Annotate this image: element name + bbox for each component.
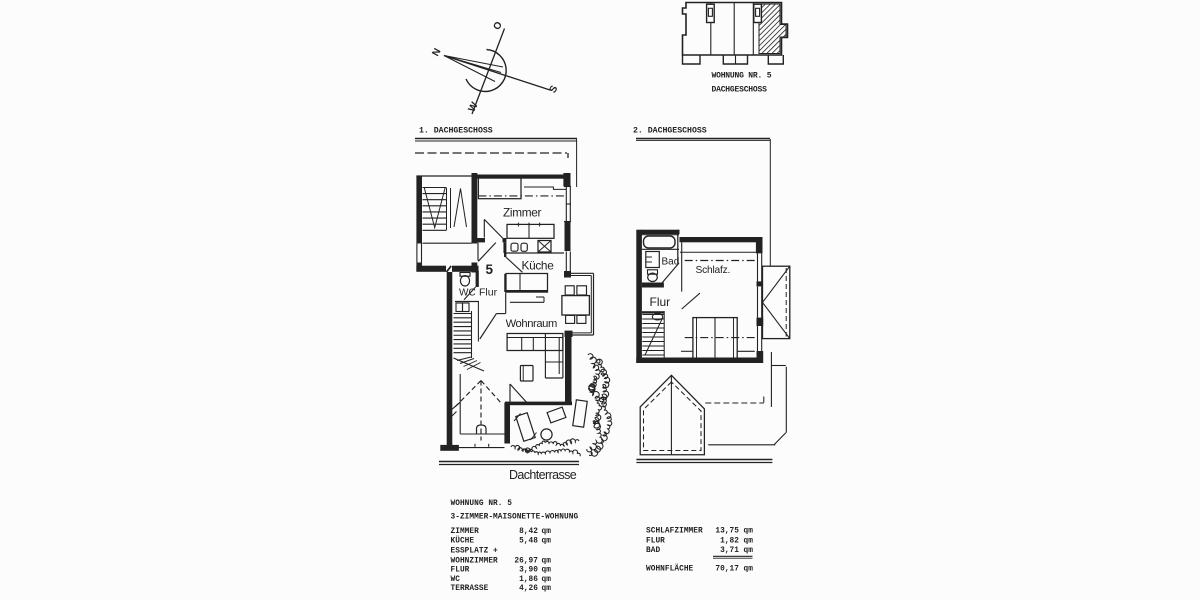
svg-text:qm: qm xyxy=(744,538,754,546)
svg-text:13,75: 13,75 xyxy=(715,528,739,536)
svg-text:qm: qm xyxy=(542,558,552,566)
svg-text:S: S xyxy=(548,84,561,95)
svg-text:5: 5 xyxy=(486,262,494,277)
svg-text:1,82: 1,82 xyxy=(720,538,739,546)
svg-text:2. DACHGESCHOSS: 2. DACHGESCHOSS xyxy=(633,127,707,136)
svg-text:ESSPLATZ +: ESSPLATZ + xyxy=(451,548,499,556)
svg-text:WC: WC xyxy=(451,576,461,584)
svg-text:qm: qm xyxy=(542,567,552,575)
svg-text:O: O xyxy=(492,20,505,32)
svg-text:KÜCHE: KÜCHE xyxy=(451,537,475,546)
svg-text:qm: qm xyxy=(542,538,552,546)
svg-text:5,48: 5,48 xyxy=(519,538,538,546)
svg-text:N: N xyxy=(430,47,443,59)
svg-text:WC: WC xyxy=(459,288,476,299)
svg-text:3,71: 3,71 xyxy=(720,547,739,555)
svg-text:3-ZIMMER-MAISONETTE-WOHNUNG: 3-ZIMMER-MAISONETTE-WOHNUNG xyxy=(451,514,579,522)
svg-text:BAD: BAD xyxy=(646,547,660,555)
svg-text:FLUR: FLUR xyxy=(646,538,665,546)
svg-text:Küche: Küche xyxy=(522,259,555,273)
svg-text:Dachterrasse: Dachterrasse xyxy=(509,468,577,482)
svg-text:1,86: 1,86 xyxy=(519,576,538,584)
svg-text:8,42: 8,42 xyxy=(519,528,538,536)
svg-text:Flur: Flur xyxy=(479,287,498,299)
svg-text:qm: qm xyxy=(744,566,754,574)
svg-text:WOHNFLÄCHE: WOHNFLÄCHE xyxy=(646,565,694,574)
svg-text:1. DACHGESCHOSS: 1. DACHGESCHOSS xyxy=(419,127,493,136)
svg-text:TERRASSE: TERRASSE xyxy=(451,585,489,593)
svg-text:WOHNUNG NR. 5: WOHNUNG NR. 5 xyxy=(451,500,513,508)
svg-text:WOHNUNG NR. 5: WOHNUNG NR. 5 xyxy=(712,72,772,81)
svg-text:DACHGESCHOSS: DACHGESCHOSS xyxy=(712,86,768,95)
svg-text:qm: qm xyxy=(744,528,754,536)
svg-text:qm: qm xyxy=(542,585,552,593)
svg-text:SCHLAFZIMMER: SCHLAFZIMMER xyxy=(646,528,703,536)
svg-text:Zimmer: Zimmer xyxy=(503,206,542,220)
svg-text:qm: qm xyxy=(542,528,552,536)
svg-text:26,97: 26,97 xyxy=(514,558,538,566)
svg-text:Flur: Flur xyxy=(650,295,671,309)
svg-text:70,17: 70,17 xyxy=(715,566,739,574)
svg-text:qm: qm xyxy=(542,576,552,584)
svg-text:Wohnraum: Wohnraum xyxy=(506,318,557,330)
svg-text:FLUR: FLUR xyxy=(451,567,470,575)
svg-text:qm: qm xyxy=(744,547,754,555)
svg-text:Schlafz.: Schlafz. xyxy=(696,265,731,276)
svg-text:3,90: 3,90 xyxy=(519,567,538,575)
svg-text:WOHNZIMMER: WOHNZIMMER xyxy=(451,558,499,566)
svg-text:ZIMMER: ZIMMER xyxy=(451,528,480,536)
svg-text:W: W xyxy=(467,100,481,114)
svg-text:4,26: 4,26 xyxy=(519,585,538,593)
